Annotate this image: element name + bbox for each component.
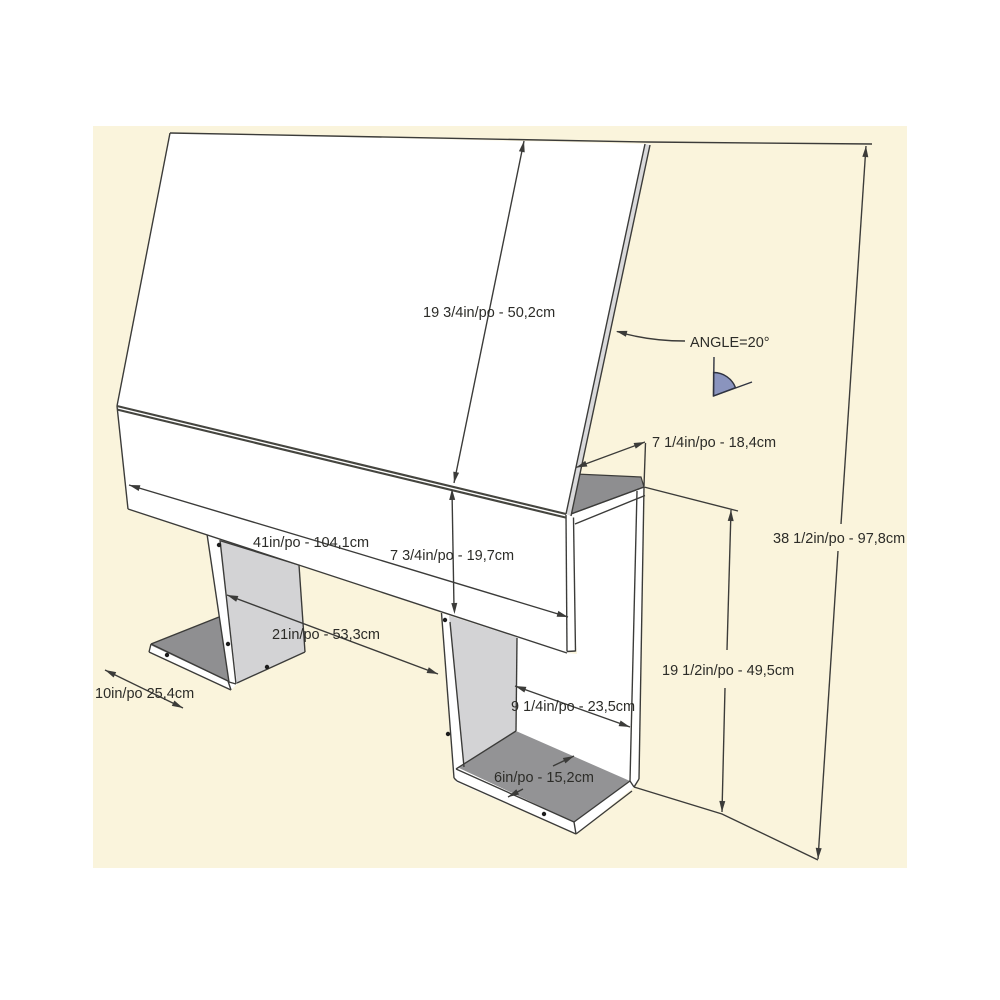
svg-text:ANGLE=20°: ANGLE=20°	[690, 335, 770, 351]
svg-text:19 3/4in/po - 50,2cm: 19 3/4in/po - 50,2cm	[423, 305, 555, 321]
svg-text:21in/po - 53,3cm: 21in/po - 53,3cm	[272, 627, 380, 643]
svg-text:38 1/2in/po - 97,8cm: 38 1/2in/po - 97,8cm	[773, 531, 905, 547]
svg-text:7 1/4in/po - 18,4cm: 7 1/4in/po - 18,4cm	[652, 435, 776, 451]
svg-text:41in/po - 104,1cm: 41in/po - 104,1cm	[253, 535, 369, 551]
svg-text:19 1/2in/po - 49,5cm: 19 1/2in/po - 49,5cm	[662, 663, 794, 679]
svg-text:9 1/4in/po - 23,5cm: 9 1/4in/po - 23,5cm	[511, 699, 635, 715]
svg-text:6in/po - 15,2cm: 6in/po - 15,2cm	[494, 770, 594, 786]
svg-text:10in/po 25,4cm: 10in/po 25,4cm	[95, 686, 194, 702]
svg-text:7 3/4in/po - 19,7cm: 7 3/4in/po - 19,7cm	[390, 548, 514, 564]
